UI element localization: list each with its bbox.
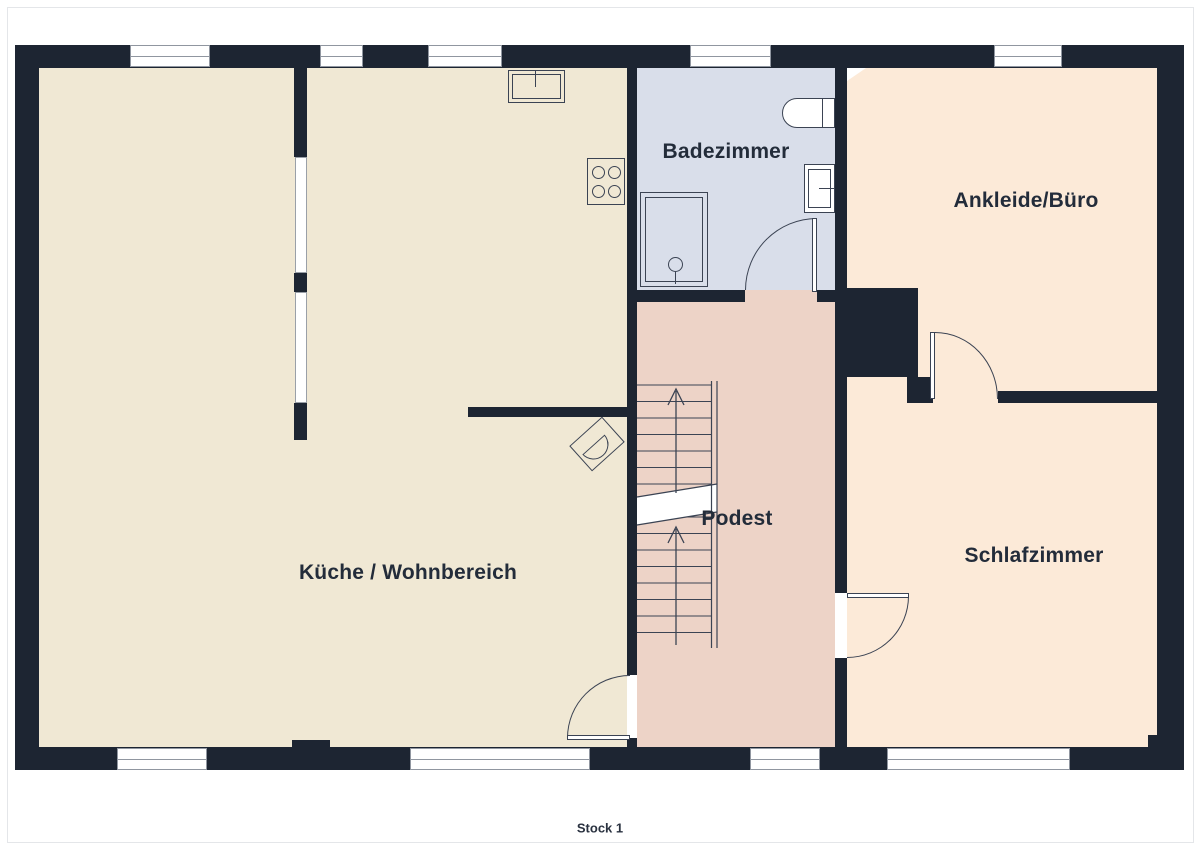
wall-bathroom-bottom-left xyxy=(637,290,745,302)
wall-kitchen-stub-horizontal xyxy=(468,407,637,417)
bedroom-door-leaf xyxy=(847,593,909,598)
window-bottom-landing xyxy=(750,748,820,770)
floor-title: Stock 1 xyxy=(577,821,623,836)
shower-icon xyxy=(640,192,708,287)
wall-partition-middle xyxy=(294,273,307,292)
window-bottom-bedroom xyxy=(887,748,1070,770)
glass-partition-upper xyxy=(295,157,307,273)
wall-kitchen-landing xyxy=(627,68,637,675)
wall-bottom-left-notch xyxy=(292,740,330,747)
stove-icon xyxy=(587,158,625,205)
washbasin-icon xyxy=(804,164,835,213)
window-top-dressing xyxy=(994,45,1062,67)
bathroom-label: Badezimmer xyxy=(663,140,790,164)
window-top-3 xyxy=(428,45,502,67)
wall-partition-lower xyxy=(294,403,307,440)
wall-landing-bedroom-upper xyxy=(835,377,847,593)
bedroom-label: Schlafzimmer xyxy=(965,544,1104,568)
window-bottom-1 xyxy=(117,748,207,770)
floor-plan-page: { "title": "Stock 1", "rooms": { "kitche… xyxy=(0,0,1200,848)
landing-label: Podest xyxy=(701,507,772,531)
wall-partition-upper xyxy=(294,68,307,157)
window-top-2 xyxy=(320,45,363,67)
bathroom-door-leaf xyxy=(812,218,817,292)
wall-exterior-left xyxy=(15,45,39,770)
toilet-tank xyxy=(822,98,835,128)
window-top-1 xyxy=(130,45,210,67)
toilet-icon xyxy=(782,98,824,128)
wall-dressing-bedroom xyxy=(998,391,1157,403)
kitchen-living-label: Küche / Wohnbereich xyxy=(299,561,517,585)
kitchen-sink-icon xyxy=(508,70,565,103)
wall-exterior-right xyxy=(1157,45,1184,770)
dressing-office-label: Ankleide/Büro xyxy=(954,189,1099,213)
kitchen-door-leaf xyxy=(567,735,630,740)
wall-bathroom-dressing xyxy=(835,68,847,288)
wall-core-block xyxy=(835,288,918,377)
wall-bedroom-corner-notch xyxy=(1148,735,1160,747)
window-top-bathroom xyxy=(690,45,771,67)
wall-landing-bedroom-lower xyxy=(835,658,847,747)
window-bottom-2 xyxy=(410,748,590,770)
wall-bathroom-bottom-right xyxy=(817,290,835,302)
glass-partition-lower xyxy=(295,292,307,403)
dressing-door-leaf xyxy=(930,332,935,399)
